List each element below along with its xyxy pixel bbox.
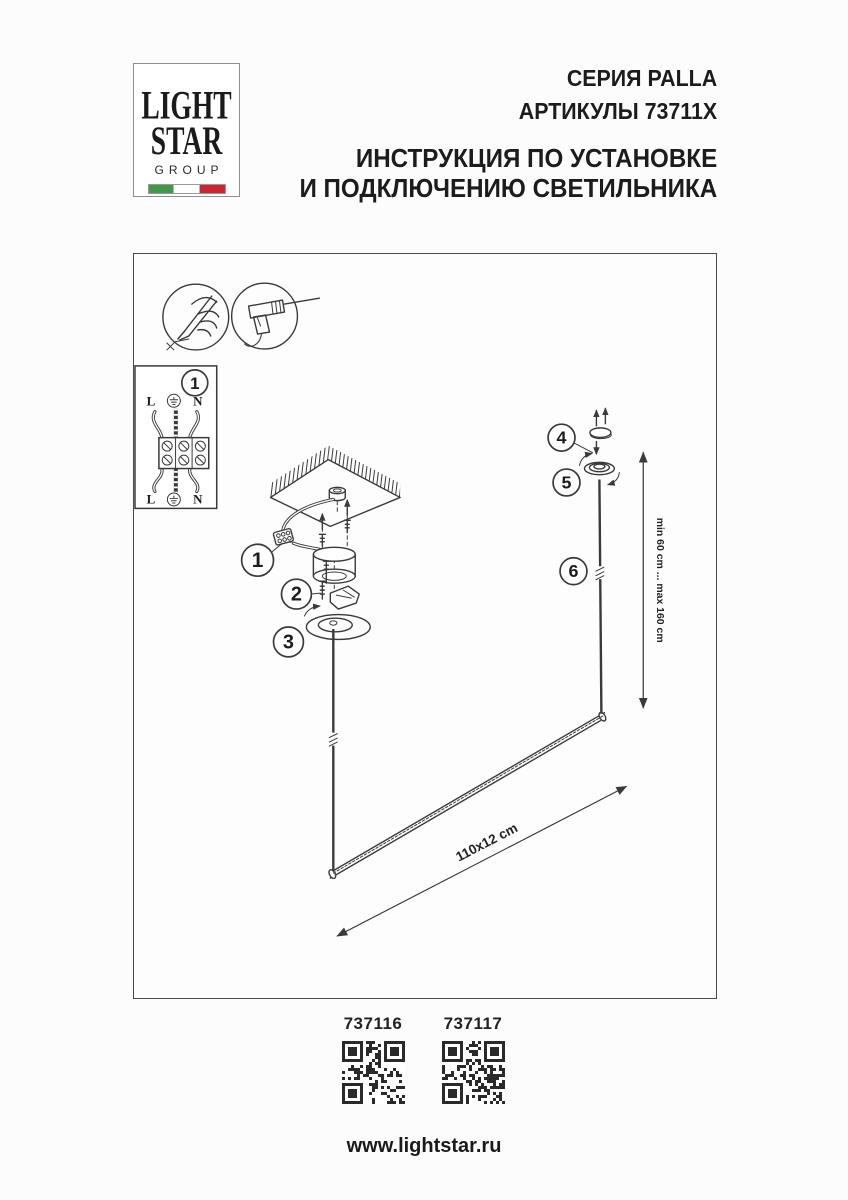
- ceiling: [271, 446, 401, 527]
- step-6-badge-label: 6: [569, 561, 579, 581]
- logo-line-group: GROUP: [134, 163, 239, 177]
- logo-line-light: LIGHT: [137, 88, 237, 124]
- instruction-title-line1: ИНСТРУКЦИЯ ПО УСТАНОВКЕ: [299, 143, 717, 173]
- wire-label-l-bottom: L: [147, 491, 156, 506]
- logo-line-star: STAR: [137, 124, 237, 160]
- bar-dimension: 110x12 cm: [337, 786, 626, 935]
- document-titles: СЕРИЯ PALLA АРТИКУЛЫ 73711X ИНСТРУКЦИЯ П…: [299, 62, 717, 203]
- articles-title: АРТИКУЛЫ 73711X: [299, 94, 717, 128]
- flag-white: [173, 185, 200, 193]
- left-rod-joint: [329, 733, 338, 746]
- instruction-title-line2: И ПОДКЛЮЧЕНИЮ СВЕТИЛЬНИКА: [299, 173, 717, 203]
- canopy-cup: [313, 547, 355, 583]
- height-dimension: min 60 cm ... max 160 cm: [643, 453, 665, 708]
- wiring-step-badge-label: 1: [190, 374, 199, 393]
- italian-flag-stripe: [148, 184, 226, 194]
- step-1-badge-label: 1: [252, 549, 264, 572]
- tool-icons: [163, 283, 319, 350]
- right-rod-joint: [595, 566, 604, 579]
- step-4-badge-label: 4: [557, 428, 567, 448]
- strain-relief-clip: [330, 586, 359, 609]
- mains-wires: [273, 499, 333, 554]
- ceiling-ring: [306, 615, 370, 640]
- wire-label-n-bottom: N: [193, 491, 203, 506]
- flag-red: [200, 185, 225, 193]
- canopy-screw: [319, 581, 325, 599]
- right-suspension-rod: [599, 480, 601, 714]
- step-4-leader: [573, 443, 592, 453]
- coil-rotation-arrow-2: [608, 473, 619, 485]
- step-5-badge-label: 5: [562, 472, 572, 492]
- step-3-badge-label: 3: [283, 631, 294, 653]
- terminal-block: [159, 438, 209, 469]
- ring-rotation-arrow: [304, 606, 319, 616]
- drill-icon: [232, 283, 320, 349]
- wiring-diagram: 1 L N: [135, 366, 217, 509]
- qr-code-label: 737116: [328, 1014, 418, 1034]
- wire-stripper-icon: [163, 284, 229, 350]
- qr-code-image: [342, 1041, 405, 1104]
- series-title: СЕРИЯ PALLA: [299, 62, 717, 94]
- ceiling-plate: [590, 409, 611, 454]
- wire-label-l-top: L: [147, 394, 156, 409]
- website-url: www.lightstar.ru: [0, 1135, 848, 1158]
- qr-item-737116: 737116: [328, 1014, 418, 1109]
- height-dimension-label: min 60 cm ... max 160 cm: [654, 518, 665, 643]
- flag-green: [149, 185, 174, 193]
- wire-label-n-top: N: [193, 394, 203, 409]
- qr-code-label: 737117: [428, 1014, 518, 1034]
- lightstar-logo: LIGHT STAR GROUP: [133, 63, 240, 197]
- installation-diagram: 1 L N: [133, 253, 717, 999]
- qr-code-image: [442, 1041, 505, 1104]
- ceiling-coupler-coil: [584, 462, 614, 474]
- step-2-badge-label: 2: [291, 584, 302, 606]
- bar-dimension-label: 110x12 cm: [453, 820, 520, 864]
- qr-item-737117: 737117: [428, 1014, 518, 1109]
